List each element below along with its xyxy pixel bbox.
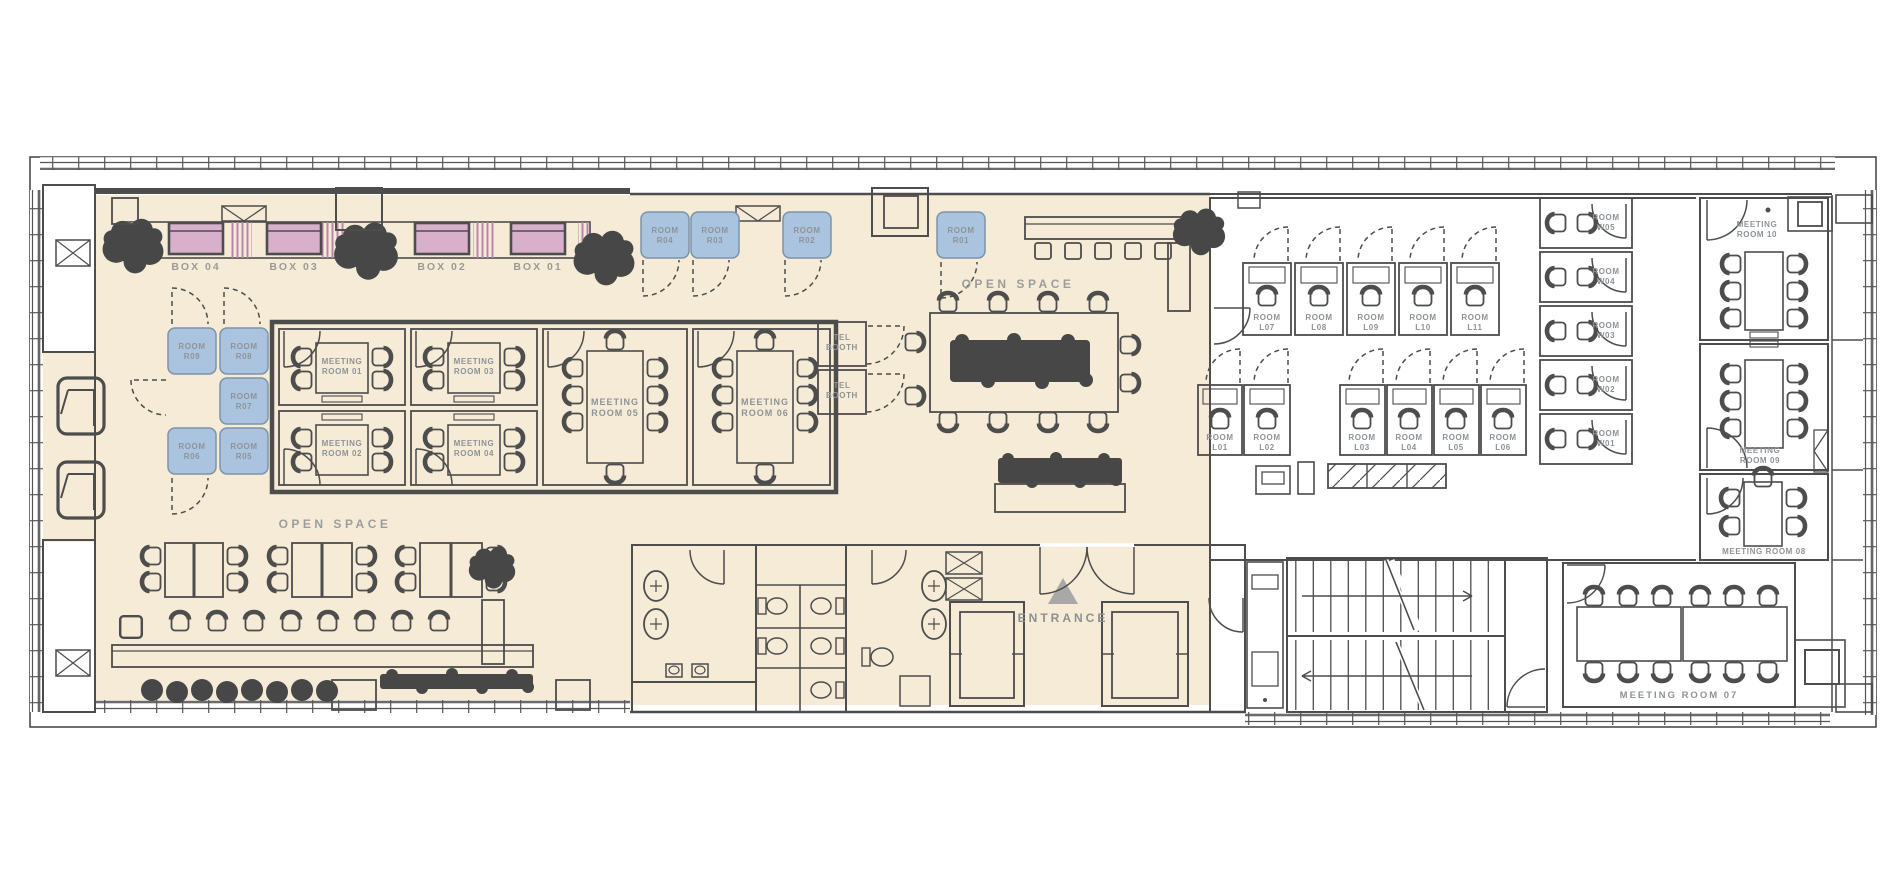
meeting-room-04-label: MEETINGROOM 04 [454,439,495,458]
focus-booth-row-bottom: ROOML01 ROOML02 ROOML03 ROOML04 ROOML05 … [1198,349,1526,455]
box-04-label: BOX 04 [171,261,220,273]
focus-booths: ROOML07 ROOML08 ROOML09 ROOML10 ROOML11 … [1198,227,1526,494]
room-w05-label: ROOMW05 [1592,213,1619,232]
planter [950,333,1093,389]
open-space-center-label: OPEN SPACE [962,277,1075,291]
office-floor-plan: BOX 04 BOX 03 BOX 02 BOX 01 ROOMR04 ROOM… [0,0,1890,891]
right-edge-rooms [1832,195,1863,712]
room-l04-label: ROOML04 [1395,433,1422,452]
printer [1256,466,1290,494]
room-w04-label: ROOMW04 [1592,267,1619,286]
window-band-bottom-right [1245,712,1830,725]
room-w02-label: ROOMW02 [1592,375,1619,394]
room-r06 [168,428,216,474]
room-l07-label: ROOML07 [1253,313,1280,332]
room-r07 [220,378,268,424]
room-r05 [220,428,268,474]
room-w03: ROOMW03 [1540,306,1632,356]
focus-zone-gray [1210,198,1710,560]
room-w02: ROOMW02 [1540,360,1632,410]
room-r09 [168,328,216,374]
meeting-room-01-label: MEETINGROOM 01 [322,357,363,376]
meeting-room-10-label: MEETINGROOM 10 [1737,220,1778,239]
box-02-label: BOX 02 [417,261,466,273]
window-band-top [40,157,1835,170]
room-w05: ROOMW05 [1540,198,1632,248]
room-l02-label: ROOML02 [1253,433,1280,452]
room-l08-label: ROOML08 [1305,313,1332,332]
meeting-room-02-label: MEETINGROOM 02 [322,439,363,458]
floor-plan-drawing: BOX 04 BOX 03 BOX 02 BOX 01 ROOMR04 ROOM… [0,0,1890,891]
printer [1298,462,1314,494]
meeting-room-05-label: MEETINGROOM 05 [591,397,639,418]
stairwell [1247,558,1547,712]
window-band-right [1863,190,1876,715]
room-l05-label: ROOML05 [1442,433,1469,452]
room-l03-label: ROOML03 [1348,433,1375,452]
box-03-label: BOX 03 [269,261,318,273]
room-w04: ROOMW04 [1540,252,1632,302]
room-l09-label: ROOML09 [1357,313,1384,332]
room-l11-label: ROOML11 [1461,313,1488,332]
room-r04 [641,212,689,258]
room-r01 [937,212,985,258]
room-w01-label: ROOMW01 [1592,429,1619,448]
room-w03-label: ROOMW03 [1592,321,1619,340]
room-l06-label: ROOML06 [1489,433,1516,452]
meeting-room-07-label: MEETING ROOM 07 [1620,690,1739,701]
window-band-left [30,190,43,712]
room-r03 [691,212,739,258]
w-booths: ROOMW05 ROOMW04 ROOMW03 ROOMW02 ROOMW01 [1540,198,1632,464]
meeting-room-07: MEETING ROOM 07 [1563,563,1845,707]
focus-booth-row-top: ROOML07 ROOML08 ROOML09 ROOML10 ROOML11 [1243,227,1499,335]
meeting-room-03-label: MEETINGROOM 03 [454,357,495,376]
entrance-label: ENTRANCE [1018,611,1109,625]
meeting-rooms-right: MEETINGROOM 10 MEETINGROOM 09 MEETING RO… [1696,195,1832,562]
room-r08 [220,328,268,374]
meeting-room-09-label: MEETINGROOM 09 [1740,446,1781,465]
box-01-label: BOX 01 [513,261,562,273]
room-w01: ROOMW01 [1540,414,1632,464]
room-r02 [783,212,831,258]
open-space-lounge-label: OPEN SPACE [279,517,392,531]
room-l10-label: ROOML10 [1409,313,1436,332]
meeting-room-08-label: MEETING ROOM 08 [1722,547,1806,556]
meeting-room-06-label: MEETINGROOM 06 [741,397,789,418]
